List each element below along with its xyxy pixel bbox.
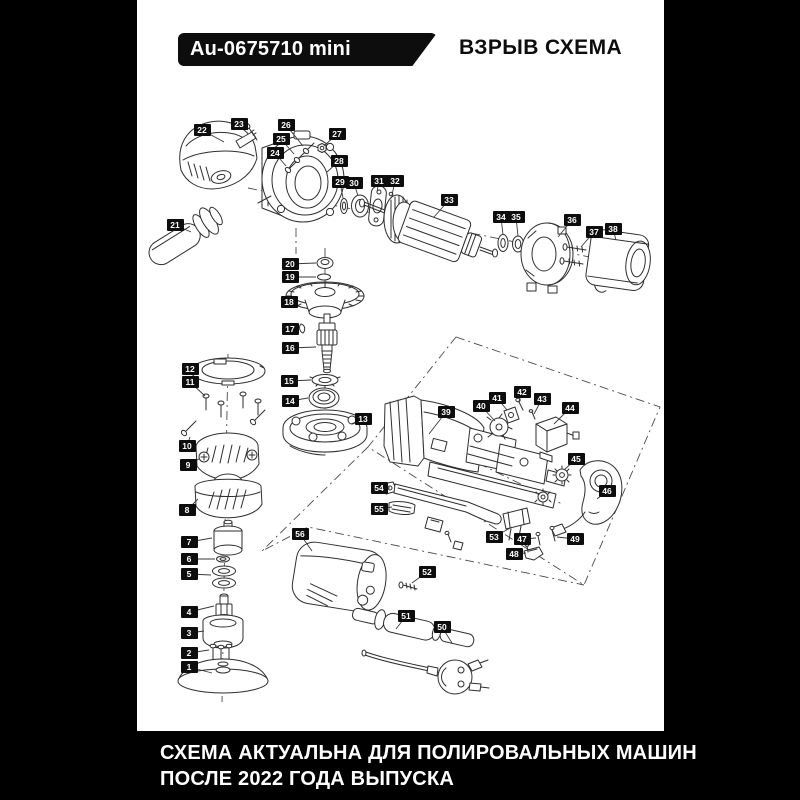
part-shape-44-switch (536, 417, 579, 462)
model-badge: Au-0675710 mini (178, 33, 437, 66)
leader-line-32 (392, 181, 395, 195)
footer-line-2: ПОСЛЕ 2022 ГОДА ВЫПУСКА (160, 766, 697, 792)
leader-line-15 (289, 380, 311, 381)
part-shape-43-pin (529, 410, 535, 419)
part-shape-48-cable-clamp (524, 544, 543, 560)
part-shape-11-screws (203, 392, 261, 417)
part-shape-22-head-cover (180, 121, 257, 189)
footer-line-1: СХЕМА АКТУАЛЬНА ДЛЯ ПОЛИРОВАЛЬНЫХ МАШИН (160, 740, 697, 766)
leader-line-34 (501, 217, 503, 235)
leader-line-43 (534, 399, 542, 414)
leader-line-52 (412, 572, 427, 583)
part-shape-53-capacitor (503, 508, 530, 540)
part-shape-47-screw (536, 532, 540, 545)
part-shape-8-cover-shell (195, 479, 262, 518)
part-shape-12-clamp-ring (191, 358, 265, 385)
part-shape-52-screw (399, 582, 417, 590)
part-shape-51-50-cable-sleeve (351, 603, 476, 650)
part-shape-power-plug (362, 650, 489, 694)
part-shape-28-gear-housing (258, 131, 344, 222)
leader-line-17 (290, 328, 298, 329)
part-shape-13-bearing-flange (283, 410, 367, 455)
leader-line-30 (354, 183, 358, 196)
part-shape-16-spindle (317, 314, 337, 373)
part-shape-20-nut (317, 258, 333, 269)
footer-note: СХЕМА АКТУАЛЬНА ДЛЯ ПОЛИРОВАЛЬНЫХ МАШИН … (160, 740, 697, 792)
exploded-view-drawing (0, 0, 800, 800)
model-badge-text: Au-0675710 mini (178, 33, 437, 66)
part-shape-linkage-bits (425, 517, 463, 550)
leader-line-14 (290, 398, 308, 401)
leader-line-49 (557, 537, 575, 539)
leader-line-40 (481, 406, 495, 421)
part-shape-17-key (300, 324, 305, 333)
part-shape-3-cup (203, 615, 243, 648)
part-shape-2-screws (210, 644, 232, 661)
part-shape-7-damper (214, 520, 242, 555)
part-shape-18-crown-gear (286, 282, 364, 318)
leader-line-2 (189, 650, 209, 653)
part-shape-1-backing-pad (178, 659, 268, 693)
leader-line-47 (522, 538, 536, 539)
part-shape-10-screws (180, 410, 265, 437)
leader-line-4 (189, 606, 214, 612)
leader-line-20 (290, 263, 316, 264)
leader-line-48 (514, 553, 526, 554)
part-shape-15-lock-washer (310, 375, 340, 388)
part-shape-6-washer (217, 556, 230, 562)
part-shape-9-bearing-clamp (196, 433, 259, 480)
part-shape-19-washer (318, 274, 331, 280)
leader-line-3 (189, 631, 204, 633)
part-shape-38-stator (584, 228, 654, 298)
part-shape-29-ring (341, 199, 348, 214)
part-shape-36-baffle (521, 223, 573, 293)
part-shape-56-rear-cover (290, 539, 391, 615)
schema-title: ВЗРЫВ СХЕМА (459, 36, 622, 60)
leader-line-35 (516, 217, 518, 236)
part-shape-21-side-handle (145, 205, 225, 269)
leader-line-10 (187, 437, 190, 446)
part-shape-55-button (389, 502, 415, 515)
part-shape-14-bearing (309, 388, 339, 408)
leader-line-5 (189, 574, 211, 575)
leader-line-53 (494, 527, 512, 537)
leader-line-16 (290, 347, 316, 348)
leader-line-45 (564, 459, 576, 470)
leader-line-7 (189, 538, 212, 542)
leader-line-41 (497, 398, 507, 410)
leader-line-11 (190, 382, 205, 396)
part-shape-34-washer (498, 235, 508, 252)
page: Au-0675710 mini ВЗРЫВ СХЕМА (0, 0, 800, 800)
